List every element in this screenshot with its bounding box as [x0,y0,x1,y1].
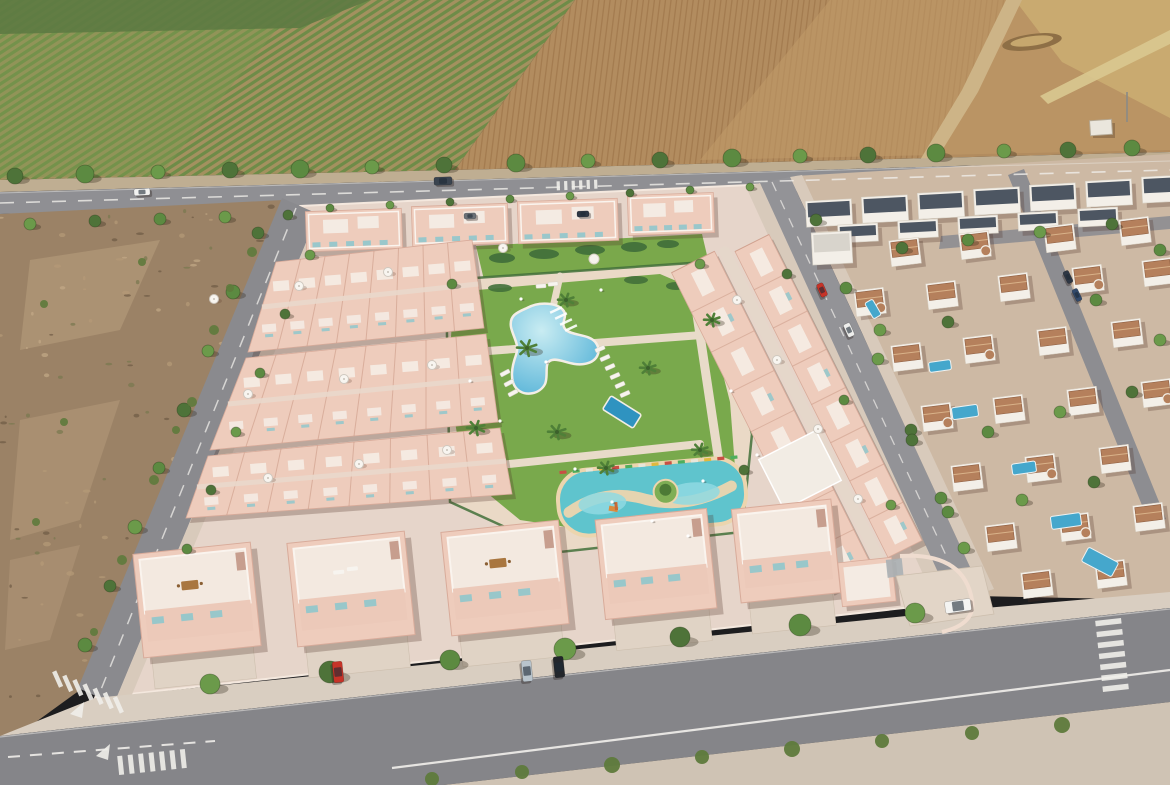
speckle [124,294,131,297]
roof-terrace [402,361,419,372]
roof-terrace [401,404,416,413]
speckle [144,295,151,297]
verge-shrub [784,741,800,757]
crosswalk-stripe [557,181,561,190]
roof-terrace [643,203,666,217]
lounger [548,282,558,287]
roof-terrace [262,323,277,332]
tree-icon [182,544,192,554]
window [267,428,275,432]
roof-terrace [465,355,482,366]
villa [1021,569,1058,603]
speckle [16,538,21,540]
villa [1141,378,1170,412]
play-fence [559,470,566,474]
tree-icon [1090,294,1102,306]
apartment-block [517,198,623,249]
flat-roof [900,221,936,233]
speckle [122,257,127,259]
roof-terrace [288,459,305,470]
garden-hedge [657,240,679,248]
play-fence [665,461,672,465]
speckle [125,537,128,540]
roof-terrace [363,484,378,493]
roof-terrace [674,200,693,213]
speckle [136,232,144,235]
speckle [136,280,140,284]
window [595,232,603,237]
roof-terrace [290,321,305,330]
roof-terrace [403,309,418,318]
detached-villa [287,530,425,678]
speckle [268,205,275,209]
speckle [211,285,218,288]
glass-door [306,605,319,613]
window [366,494,374,498]
play-fence [651,462,658,466]
window [312,242,320,247]
tree-icon [252,227,264,239]
gate-roof [843,563,890,601]
speckle [127,361,132,363]
garden-hedge [489,253,515,263]
tree-icon [128,520,142,534]
tree-icon [231,427,241,437]
tree-icon [326,204,334,212]
glass-door [364,599,377,607]
roof-terrace [250,463,267,474]
window [405,414,413,418]
car [434,177,454,188]
tree-icon [566,192,574,200]
glass-door [613,579,626,587]
speckle [65,502,69,504]
play-fence [717,457,724,461]
roof-terrace [375,312,390,321]
glass-door [749,565,762,573]
speckle [43,531,50,534]
roof-terrace [275,373,292,384]
aerial-photo [0,0,1170,785]
flat-roof [919,193,962,209]
glass-door [460,594,473,602]
tree-icon [962,234,974,246]
car-glass [580,212,585,216]
window [435,316,443,320]
glass-door [152,616,165,624]
car-glass [334,667,343,677]
roof-terrace [476,443,493,454]
glass-door [210,610,223,618]
glass-door [335,602,348,610]
speckle [94,500,96,503]
speckle [116,258,124,260]
window [435,237,443,242]
speckle [9,695,12,698]
tree-icon [1034,226,1046,238]
speckle [26,414,30,418]
speckle [102,536,108,540]
tree-icon [997,144,1011,158]
verge-shrub [515,765,529,779]
play-fence [586,468,593,472]
umbrella-pole [358,463,360,465]
roof-terrace [363,453,380,464]
roof-terrace [370,364,387,375]
crosswalk-stripe [586,180,590,189]
window [486,235,494,240]
roof-terrace [323,219,348,233]
tree-icon [283,210,293,220]
window [406,491,414,495]
window [378,322,386,326]
modern-house [1141,175,1170,208]
tree-icon [793,149,807,163]
roof-terrace [318,318,333,327]
car-glass [138,190,145,195]
umbrella-pole [267,477,269,479]
umbrella-pole [343,378,345,380]
tree-icon [810,214,822,226]
speckle [145,411,149,414]
roof-terrace [402,266,419,277]
tree-icon [7,168,23,184]
umbrella-pole [387,271,389,273]
roof-terrace [243,377,260,388]
roof-terrace [325,275,342,286]
speckle [41,353,48,357]
turret-roof [1093,279,1104,290]
speckle [60,286,66,289]
roof-terrace [431,306,446,315]
tree-icon [839,395,849,405]
window [463,313,471,317]
speckle [31,312,34,316]
speckle [192,217,194,219]
roof-terrace [460,303,475,312]
speckle [70,323,75,326]
roof-terrace [273,280,290,291]
roof-terrace [263,417,278,426]
villa [959,230,996,264]
roof-terrace [436,401,451,410]
tree-icon [436,157,452,173]
speckle [183,267,190,269]
speckle [108,215,110,219]
tree-icon [935,492,947,504]
modern-house [973,187,1025,221]
roof-dining-table [489,558,507,569]
speckle [134,414,140,418]
speckle [66,571,74,576]
tree-icon [202,345,214,357]
villa [1044,223,1081,257]
window [363,240,371,245]
tree-icon [1154,334,1166,346]
window [293,331,301,335]
window [247,504,255,508]
tree-icon [104,580,116,592]
window [524,234,532,239]
person [544,360,547,363]
speckle [79,524,81,528]
aerial-development-render [0,0,1170,785]
car-glass [523,666,532,676]
umbrella-pole [213,298,215,300]
play-fence [691,459,698,463]
speckle [38,340,41,344]
speckle [5,416,7,419]
speckle [89,319,93,323]
stairwell [691,518,702,537]
window [664,225,672,230]
person [573,467,576,470]
speckle [186,302,190,307]
umbrella-pole [776,359,778,361]
stairwell [389,541,400,560]
tiled-roof [1135,504,1163,522]
villa [1133,502,1170,536]
tree-icon [695,259,705,269]
speckle [54,537,56,540]
tree-icon [291,160,309,178]
villa [993,394,1030,428]
turret-roof [984,349,995,360]
umbrella-pole [817,428,819,430]
tree-icon [206,485,216,495]
speckle [114,221,117,225]
apartment-block [627,192,719,240]
roof-terrace [429,214,454,228]
umbrella-pole [446,449,448,451]
villa [998,272,1035,306]
window [370,418,378,422]
umbrella-pole [502,247,504,249]
shrub [40,300,48,308]
flat-roof [1031,185,1074,201]
roof-terrace [283,490,298,499]
umbrella-pole [857,498,859,500]
roof-terrace [454,260,471,271]
play-fence [678,460,685,464]
tree-icon [906,434,918,446]
tree-icon [1054,406,1066,418]
glass-door [796,560,809,568]
detached-villa [133,541,271,689]
villa [1067,386,1104,420]
tree-icon [958,542,970,554]
window [329,242,337,247]
tree-icon [219,211,231,223]
flat-roof [1143,177,1170,193]
tree-icon [76,165,94,183]
shrub [187,397,197,407]
roof-terrace [428,263,445,274]
window [649,225,657,230]
speckle [158,270,161,272]
speckle [58,376,63,379]
window [322,328,330,332]
verge-shrub [695,750,709,764]
tree-icon [789,614,811,636]
flat-roof [960,217,996,229]
window [694,224,702,229]
tree-icon [1088,476,1100,488]
flat-roof [863,197,906,213]
roof-terrace [482,475,497,484]
play-fence [638,463,645,467]
speckle [164,418,169,420]
tree-icon [151,165,165,179]
shrub [90,628,98,636]
speckle [44,373,49,377]
glass-door [641,576,654,584]
speckle [54,264,61,268]
gate-building [838,556,907,611]
speckle [112,238,118,241]
tree-icon [200,674,220,694]
speckle [209,219,213,221]
palm-icon [474,426,478,430]
villa [926,280,963,314]
roof-terrace [204,496,219,505]
palm-icon [564,298,568,302]
glass-door [773,562,786,570]
villa [1111,318,1148,352]
turret-roof [980,245,991,256]
shrub [209,325,219,335]
speckle [127,364,133,366]
flat-roof [1020,213,1056,225]
pergola [886,558,904,578]
tree-icon [1126,386,1138,398]
speckle [43,470,47,472]
person [498,419,501,422]
car [551,656,565,680]
speckle [83,288,86,290]
palm-icon [525,346,529,350]
villa [1142,257,1170,291]
speckle [43,542,51,547]
speckle [82,659,88,662]
tree-icon [386,201,394,209]
person [686,534,689,537]
roof-terrace [401,449,418,460]
roof-terrace [298,414,313,423]
crosswalk-stripe [564,181,568,190]
tree-icon [927,144,945,162]
tree-icon [1060,142,1076,158]
window [265,334,273,338]
villa [951,462,988,496]
speckle [99,576,106,578]
speckle [205,213,207,215]
window [301,424,309,428]
window [452,236,460,241]
tree-icon [581,154,595,168]
speckle [103,478,107,481]
tree-icon [24,218,36,230]
tree-icon [886,500,896,510]
palm-icon [646,366,650,370]
tree-icon [447,279,457,289]
tree-icon [506,195,514,203]
tree-icon [942,506,954,518]
speckle [40,561,44,566]
turret-roof [942,417,953,428]
verge-shrub [965,726,979,740]
speckle [83,489,91,492]
palm-icon [604,466,608,470]
play-fence [704,458,711,462]
shrub [149,475,159,485]
roof-dining-table [181,580,199,591]
fountain [589,254,599,264]
villa [985,522,1022,556]
tree-icon [153,462,165,474]
turret-roof [1080,527,1091,538]
car [330,661,344,685]
window [485,485,493,489]
speckle [83,276,86,280]
tree-icon [446,198,454,206]
crosswalk-stripe [594,180,598,189]
verge-shrub [1054,717,1070,733]
speckle [256,240,264,242]
tree-icon [255,368,265,378]
window [418,237,426,242]
tree-icon [89,215,101,227]
window [326,497,334,501]
villa [1099,444,1136,478]
speckle [156,308,161,311]
turret-roof [1046,468,1057,479]
window [287,500,295,504]
play-fence [625,465,632,469]
shrub [247,247,257,257]
tree-icon [982,426,994,438]
car-glass [555,662,564,672]
window [350,325,358,329]
villa [1037,326,1074,360]
window [634,226,642,231]
window [406,319,414,323]
roof-terrace [350,272,367,283]
tree-icon [874,324,886,336]
person [755,453,758,456]
stairwell [543,530,554,549]
speckle [40,603,43,605]
modern-house [811,231,857,270]
speckle [179,234,185,238]
shrub [138,258,146,266]
garden-hedge [529,249,559,259]
tree-icon [840,282,852,294]
roof-terrace [442,478,457,487]
speckle [183,209,186,213]
car-glass [952,600,965,611]
park-hedge [488,284,512,292]
palm-icon [710,318,714,322]
speckle [21,597,27,599]
roof-terrace [212,466,229,477]
villa [1119,216,1156,250]
speckle [18,639,21,641]
crosswalk-stripe [579,180,583,189]
roof-terrace [307,370,324,381]
roof-terrace [244,493,259,502]
speckle [193,259,200,262]
